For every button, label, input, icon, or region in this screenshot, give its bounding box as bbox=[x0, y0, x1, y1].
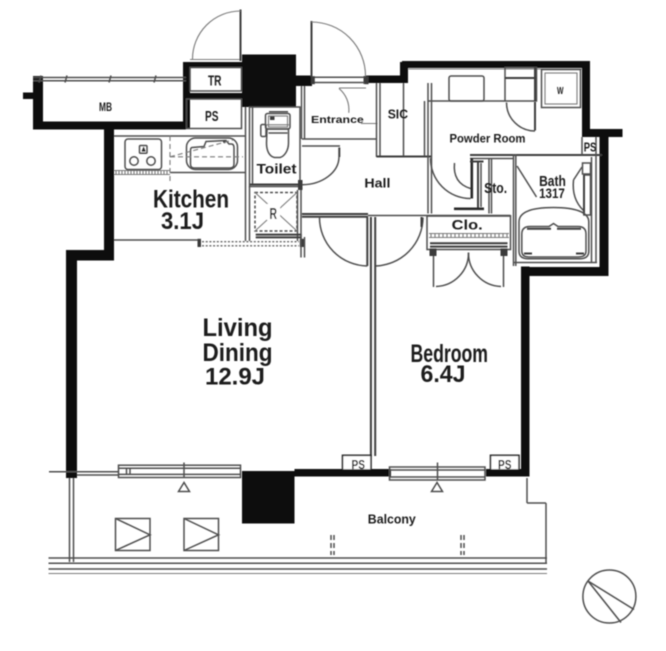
svg-text:Hall: Hall bbox=[364, 175, 390, 190]
svg-text:MB: MB bbox=[99, 100, 112, 114]
svg-text:PS: PS bbox=[584, 141, 597, 155]
svg-text:PS: PS bbox=[352, 458, 366, 472]
svg-text:3.1J: 3.1J bbox=[161, 208, 204, 235]
svg-text:PS: PS bbox=[498, 458, 512, 472]
svg-text:6.4J: 6.4J bbox=[421, 361, 466, 388]
svg-text:R: R bbox=[270, 206, 278, 223]
svg-text:Clo.: Clo. bbox=[452, 218, 483, 233]
svg-text:Sto.: Sto. bbox=[484, 180, 507, 197]
svg-text:1317: 1317 bbox=[539, 186, 565, 201]
svg-text:12.9J: 12.9J bbox=[205, 364, 265, 391]
svg-text:SIC: SIC bbox=[388, 108, 408, 122]
svg-text:Powder Room: Powder Room bbox=[450, 133, 526, 145]
svg-text:Balcony: Balcony bbox=[368, 513, 416, 527]
svg-text:W: W bbox=[557, 86, 564, 97]
svg-text:TR: TR bbox=[208, 73, 222, 90]
svg-text:Entrance: Entrance bbox=[311, 114, 364, 126]
svg-text:Toilet: Toilet bbox=[257, 161, 297, 177]
svg-text:Living: Living bbox=[203, 314, 273, 342]
svg-text:PS: PS bbox=[205, 108, 219, 125]
